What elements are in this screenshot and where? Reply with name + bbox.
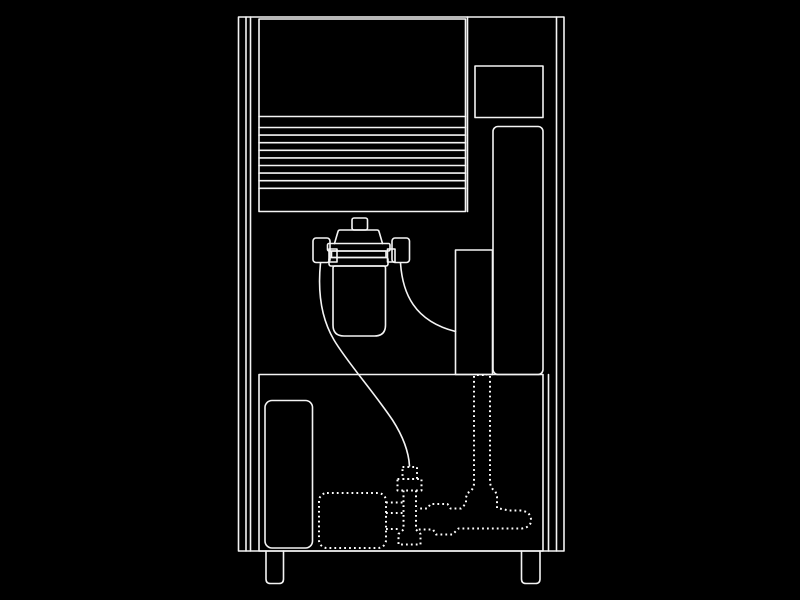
inlet-fitting-top: [403, 467, 418, 479]
top-right-panel: [475, 66, 543, 118]
filter-body: [333, 266, 386, 336]
bottom-compartment: [259, 375, 549, 552]
inlet-fitting-collar: [398, 479, 422, 491]
manifold-left-branch: [417, 376, 474, 509]
cabinet-outline: [239, 17, 565, 551]
louver-door-panel: [259, 17, 468, 212]
pump: [319, 493, 386, 548]
dotted-plumbing: [319, 375, 531, 548]
filter-ring-lower: [329, 258, 388, 267]
left-reservoir: [265, 401, 313, 549]
schematic-canvas: [0, 0, 800, 600]
support-feet: [266, 551, 540, 584]
door-outline: [259, 19, 466, 212]
filter-cap-dome: [335, 230, 383, 244]
machine-diagram: [0, 0, 800, 600]
right-column-panel: [493, 127, 543, 375]
valve-body: [399, 491, 421, 545]
mid-right-box: [456, 250, 493, 375]
filter-cap-knob: [352, 218, 368, 230]
right-tube: [401, 263, 456, 332]
louver-vents: [259, 128, 466, 189]
right-foot: [522, 551, 541, 584]
water-filter: [313, 218, 410, 336]
filter-ring-upper: [332, 251, 387, 258]
supply-tubes: [320, 263, 456, 466]
right-section: [456, 66, 544, 375]
pump-valve-connectors: [386, 503, 403, 530]
cabinet-frame: [239, 17, 565, 551]
left-foot: [266, 551, 284, 584]
